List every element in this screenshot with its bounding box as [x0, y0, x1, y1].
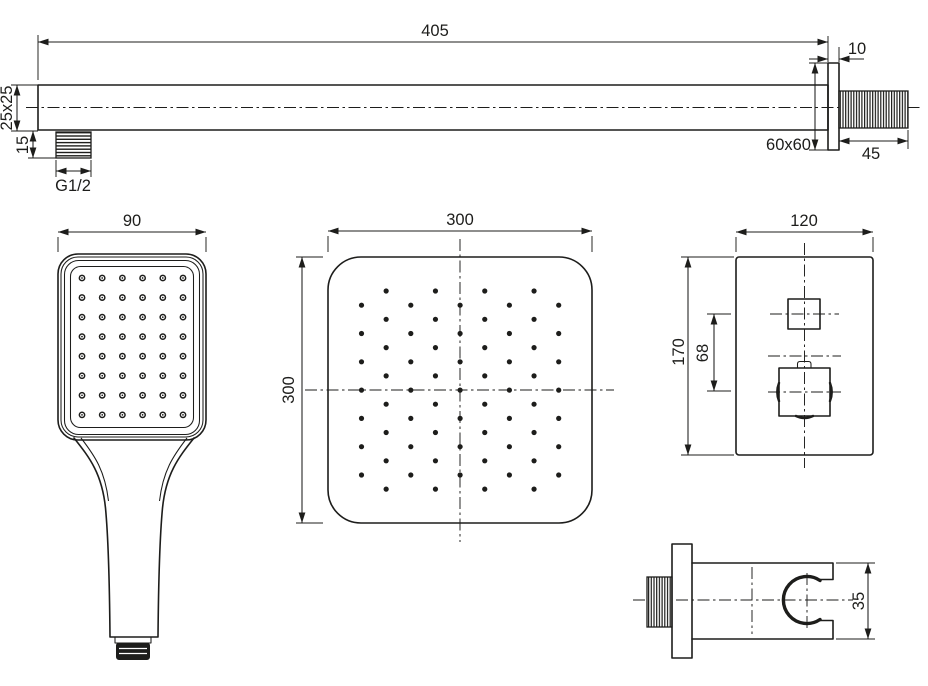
nozzle-dot — [458, 331, 463, 336]
nozzle-dot — [81, 336, 83, 338]
nozzle-dot — [359, 472, 364, 477]
nozzle-dot — [433, 458, 438, 463]
arm-outlet-thread — [56, 132, 91, 158]
dim-label-mixer-width: 120 — [790, 212, 818, 230]
nozzle-dot — [507, 359, 512, 364]
nozzle-dot — [482, 487, 487, 492]
nozzle-dot — [531, 317, 536, 322]
technical-drawing: 405 25x25 15 G1/2 10 60x60 45 — [0, 0, 928, 686]
nozzle-dot — [142, 316, 144, 318]
nozzle-dot — [458, 444, 463, 449]
nozzle-dot — [408, 388, 413, 393]
outlet-wall-plate — [672, 544, 692, 658]
nozzle-dot — [458, 303, 463, 308]
nozzle-dot — [408, 303, 413, 308]
nozzle-dot — [458, 359, 463, 364]
hand-shower-handle — [74, 438, 194, 637]
drawing-sheet: 405 25x25 15 G1/2 10 60x60 45 — [0, 0, 928, 686]
nozzle-dot — [408, 331, 413, 336]
nozzle-dot — [81, 316, 83, 318]
nozzle-dot — [482, 402, 487, 407]
dim-label-outlet-thread-length: 15 — [14, 136, 32, 154]
nozzle-dot — [359, 359, 364, 364]
nozzle-dot — [122, 316, 124, 318]
nozzle-dot — [101, 297, 103, 299]
dim-label-arm-length: 405 — [421, 22, 449, 40]
nozzle-dot — [182, 414, 184, 416]
nozzle-dot — [384, 458, 389, 463]
nozzle-dot — [182, 336, 184, 338]
nozzle-dot — [556, 472, 561, 477]
nozzle-dot — [101, 375, 103, 377]
nozzle-dot — [531, 373, 536, 378]
nozzle-dot — [142, 336, 144, 338]
hand-shower-thread-tip — [117, 643, 150, 660]
nozzle-dot — [182, 355, 184, 357]
nozzle-dot — [359, 303, 364, 308]
nozzle-dot — [384, 430, 389, 435]
nozzle-dot — [122, 277, 124, 279]
nozzle-dot — [101, 316, 103, 318]
nozzle-dot — [162, 355, 164, 357]
nozzle-dot — [142, 355, 144, 357]
nozzle-dot — [433, 317, 438, 322]
nozzle-dot — [556, 444, 561, 449]
nozzle-dot — [384, 487, 389, 492]
nozzle-dot — [458, 388, 463, 393]
nozzle-dot — [433, 373, 438, 378]
nozzle-dot — [507, 416, 512, 421]
nozzle-dot — [408, 359, 413, 364]
nozzle-dot — [182, 277, 184, 279]
nozzle-dot — [433, 430, 438, 435]
nozzle-dot — [384, 345, 389, 350]
nozzle-dot — [531, 487, 536, 492]
nozzle-dot — [142, 414, 144, 416]
nozzle-dot — [556, 359, 561, 364]
shower-arm-view: 405 25x25 15 G1/2 10 60x60 45 — [0, 22, 922, 195]
nozzle-dot — [433, 402, 438, 407]
nozzle-dot — [122, 414, 124, 416]
nozzle-dot — [81, 297, 83, 299]
nozzle-dot — [531, 402, 536, 407]
nozzle-dot — [408, 444, 413, 449]
nozzle-dot — [482, 458, 487, 463]
dim-label-flange-size: 60x60 — [766, 136, 811, 154]
nozzle-dot — [162, 297, 164, 299]
dim-label-mixer-height: 170 — [670, 338, 688, 366]
outlet-thread — [647, 577, 672, 627]
nozzle-dot — [556, 303, 561, 308]
nozzle-dot — [122, 375, 124, 377]
nozzle-dot — [556, 331, 561, 336]
nozzle-dot — [507, 444, 512, 449]
nozzle-dot — [556, 388, 561, 393]
dim-label-outlet-thread: G1/2 — [55, 177, 91, 195]
hand-shower-head-shell — [65, 261, 200, 435]
nozzle-dot — [101, 414, 103, 416]
nozzle-dot — [458, 416, 463, 421]
wall-outlet-view: 35 — [633, 544, 875, 658]
nozzle-dot — [433, 288, 438, 293]
nozzle-dot — [81, 414, 83, 416]
nozzle-dot — [507, 388, 512, 393]
nozzle-dot — [384, 373, 389, 378]
dim-label-head-height: 300 — [280, 376, 298, 404]
nozzle-dot — [482, 430, 487, 435]
nozzle-dot — [101, 394, 103, 396]
nozzle-dot — [408, 472, 413, 477]
dim-label-handle-spacing: 68 — [694, 344, 712, 362]
dim-label-hand-shower-width: 90 — [123, 212, 141, 230]
nozzle-dot — [101, 355, 103, 357]
nozzle-dot — [408, 416, 413, 421]
nozzle-dot — [142, 297, 144, 299]
nozzle-dot — [359, 444, 364, 449]
nozzle-dot — [162, 375, 164, 377]
nozzle-dot — [531, 458, 536, 463]
nozzle-dot — [482, 288, 487, 293]
nozzle-dot — [531, 345, 536, 350]
hand-shower-view: 90 — [58, 212, 206, 660]
nozzle-dot — [482, 345, 487, 350]
nozzle-dot — [162, 414, 164, 416]
nozzle-dot — [507, 472, 512, 477]
nozzle-dot — [81, 394, 83, 396]
nozzle-dot — [162, 394, 164, 396]
dim-label-inlet-length: 45 — [862, 145, 880, 163]
nozzle-dot — [162, 277, 164, 279]
nozzle-dot — [384, 402, 389, 407]
dim-label-arm-profile: 25x25 — [0, 86, 16, 131]
arm-wall-flange — [828, 63, 839, 150]
nozzle-dot — [433, 487, 438, 492]
nozzle-dot — [101, 277, 103, 279]
nozzle-dot — [384, 288, 389, 293]
hand-shower-head-shell — [61, 257, 203, 437]
nozzle-dot — [122, 336, 124, 338]
nozzle-dot — [531, 288, 536, 293]
nozzle-dot — [482, 373, 487, 378]
nozzle-dot — [81, 277, 83, 279]
nozzle-dot — [81, 355, 83, 357]
nozzle-dot — [458, 472, 463, 477]
nozzle-dot — [142, 375, 144, 377]
dim-label-head-width: 300 — [446, 211, 474, 229]
nozzle-dot — [359, 331, 364, 336]
nozzle-dot — [142, 277, 144, 279]
nozzle-dot — [101, 336, 103, 338]
mixer-view: 120 170 68 — [670, 212, 873, 468]
hand-shower-collar — [115, 637, 151, 643]
nozzle-dot — [182, 297, 184, 299]
nozzle-dot — [182, 316, 184, 318]
nozzle-dot — [482, 317, 487, 322]
nozzle-dot — [122, 297, 124, 299]
arm-inlet-thread — [839, 91, 908, 128]
nozzle-dot — [122, 394, 124, 396]
hand-shower-face-plate — [71, 267, 194, 428]
nozzle-dot — [433, 345, 438, 350]
dim-label-flange-thickness: 10 — [848, 40, 866, 58]
nozzle-dot — [162, 336, 164, 338]
nozzle-dot — [182, 375, 184, 377]
nozzle-dot — [359, 416, 364, 421]
nozzle-dot — [556, 416, 561, 421]
nozzle-dot — [162, 316, 164, 318]
nozzle-dot — [359, 388, 364, 393]
nozzle-dot — [182, 394, 184, 396]
hand-shower-nozzle-grid — [79, 275, 187, 419]
nozzle-dot — [122, 355, 124, 357]
nozzle-dot — [507, 331, 512, 336]
overhead-shower-view: 300 300 — [280, 211, 614, 542]
nozzle-dot — [531, 430, 536, 435]
nozzle-dot — [142, 394, 144, 396]
dim-label-outlet-height: 35 — [850, 592, 868, 610]
nozzle-dot — [507, 303, 512, 308]
nozzle-dot — [81, 375, 83, 377]
nozzle-dot — [384, 317, 389, 322]
